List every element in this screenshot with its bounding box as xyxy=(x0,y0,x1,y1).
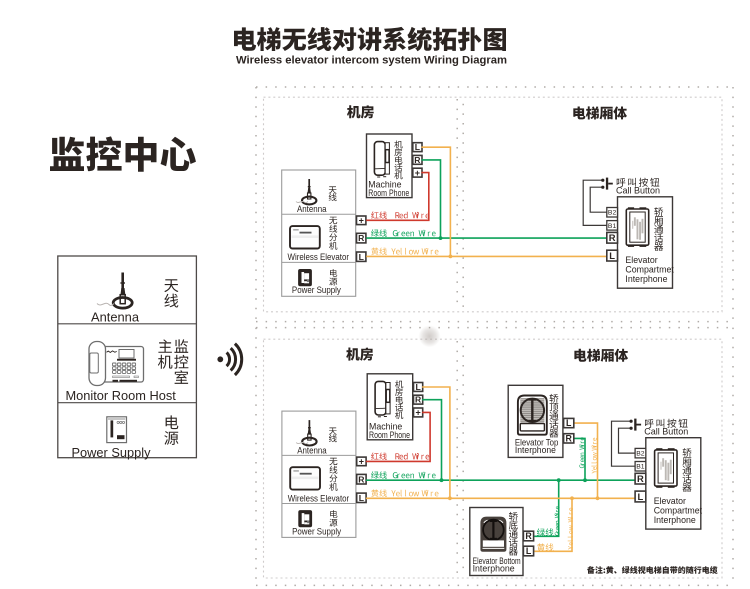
svg-text:B2: B2 xyxy=(608,210,617,217)
svg-text:Wireless Elevator: Wireless Elevator xyxy=(288,493,350,503)
svg-text:+: + xyxy=(415,168,420,178)
svg-text:Room Phone: Room Phone xyxy=(369,430,410,440)
svg-text:R: R xyxy=(358,233,365,243)
svg-text:Power Supply: Power Supply xyxy=(72,446,152,460)
svg-text:L: L xyxy=(638,491,644,502)
svg-text:R: R xyxy=(415,395,422,405)
svg-text:L: L xyxy=(609,250,615,261)
svg-text:Wireless elevator intercom sys: Wireless elevator intercom system Wiring… xyxy=(236,55,507,67)
svg-text:L: L xyxy=(415,142,420,152)
svg-text:Call Button: Call Button xyxy=(616,185,660,195)
svg-text:+: + xyxy=(359,216,364,226)
svg-text:Antenna: Antenna xyxy=(91,311,139,325)
svg-text:Wireless Elevator: Wireless Elevator xyxy=(288,252,350,262)
svg-text:L: L xyxy=(415,382,420,392)
svg-text:Elevator: Elevator xyxy=(654,496,686,506)
svg-text:Antenna: Antenna xyxy=(297,204,327,214)
svg-text:B1: B1 xyxy=(636,464,645,471)
svg-text:Power Supply: Power Supply xyxy=(292,526,342,536)
svg-text:Interphone: Interphone xyxy=(473,564,515,574)
svg-text:Compartmet: Compartmet xyxy=(654,506,703,516)
svg-text:R: R xyxy=(358,474,365,484)
svg-text:Elevator: Elevator xyxy=(625,255,657,265)
svg-text:L: L xyxy=(566,418,572,428)
svg-text:B1: B1 xyxy=(608,223,617,230)
svg-text:R: R xyxy=(566,434,573,444)
svg-text:R: R xyxy=(414,155,421,165)
svg-text:Interphone: Interphone xyxy=(625,274,667,284)
svg-text:Room Phone: Room Phone xyxy=(368,188,409,198)
svg-text:L: L xyxy=(526,546,532,556)
svg-text:R: R xyxy=(609,232,616,243)
svg-text:L: L xyxy=(359,493,364,503)
svg-text:L: L xyxy=(359,252,364,262)
svg-text:B2: B2 xyxy=(636,451,645,458)
svg-text:+: + xyxy=(359,457,364,467)
svg-text:Power Supply: Power Supply xyxy=(292,285,342,295)
svg-text:R: R xyxy=(525,531,532,541)
svg-text:Compartmet: Compartmet xyxy=(625,265,674,275)
svg-text:Interphone: Interphone xyxy=(654,515,696,525)
svg-text:Call Button: Call Button xyxy=(644,426,688,436)
svg-text:Monitor Room Host: Monitor Room Host xyxy=(66,389,177,403)
svg-text:+: + xyxy=(415,408,420,418)
svg-text:R: R xyxy=(637,473,644,484)
svg-text:Antenna: Antenna xyxy=(297,445,327,455)
svg-text:Interphone: Interphone xyxy=(515,445,556,455)
